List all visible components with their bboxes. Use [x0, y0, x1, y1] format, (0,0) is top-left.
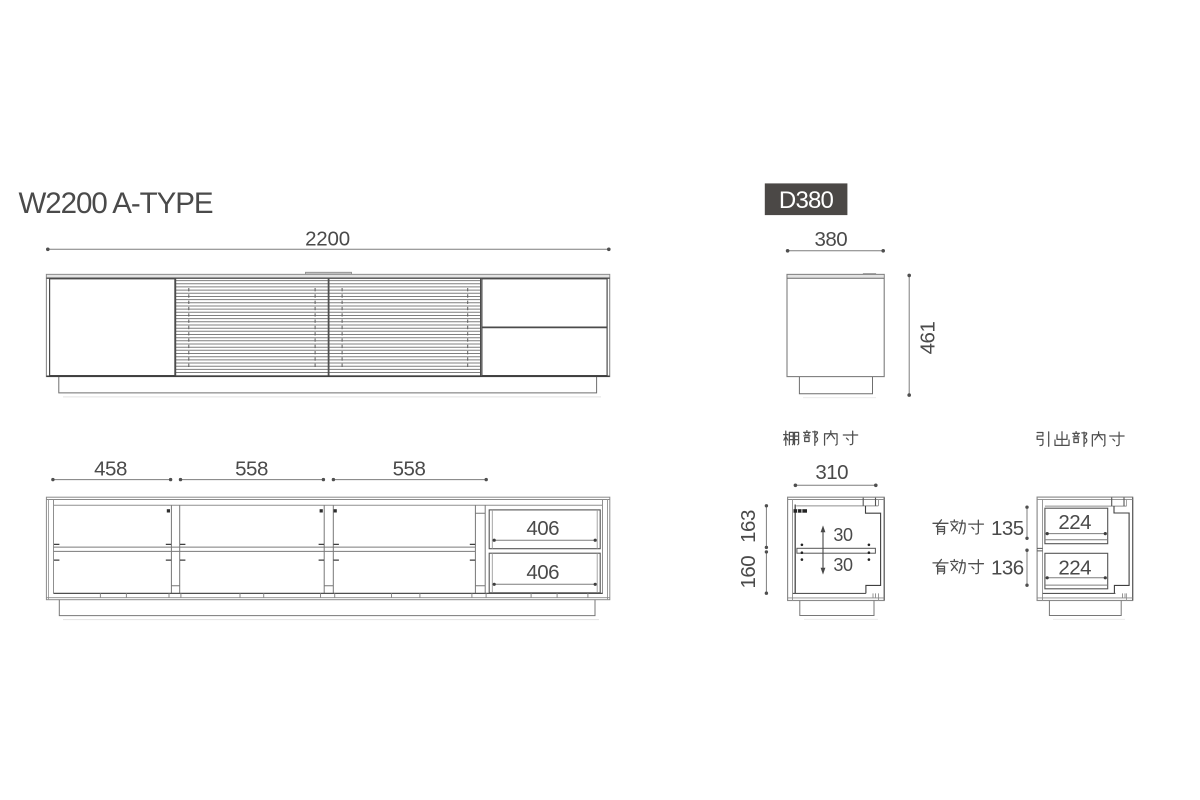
- svg-text:W2200 A-TYPE: W2200 A-TYPE: [19, 187, 213, 220]
- svg-text:461: 461: [917, 322, 940, 355]
- svg-text:558: 558: [393, 457, 426, 480]
- svg-text:224: 224: [1058, 557, 1091, 580]
- svg-text:30: 30: [833, 555, 853, 575]
- svg-text:558: 558: [235, 457, 268, 480]
- svg-text:D380: D380: [779, 187, 834, 214]
- svg-text:224: 224: [1058, 511, 1091, 534]
- svg-text:136: 136: [991, 557, 1024, 580]
- svg-text:135: 135: [991, 517, 1024, 540]
- svg-text:406: 406: [526, 517, 559, 540]
- svg-text:163: 163: [737, 510, 760, 543]
- svg-text:380: 380: [814, 228, 847, 251]
- svg-text:458: 458: [94, 457, 127, 480]
- svg-text:406: 406: [526, 561, 559, 584]
- svg-text:310: 310: [815, 461, 848, 484]
- svg-text:160: 160: [737, 556, 760, 589]
- svg-text:30: 30: [833, 525, 853, 545]
- svg-text:2200: 2200: [305, 228, 350, 251]
